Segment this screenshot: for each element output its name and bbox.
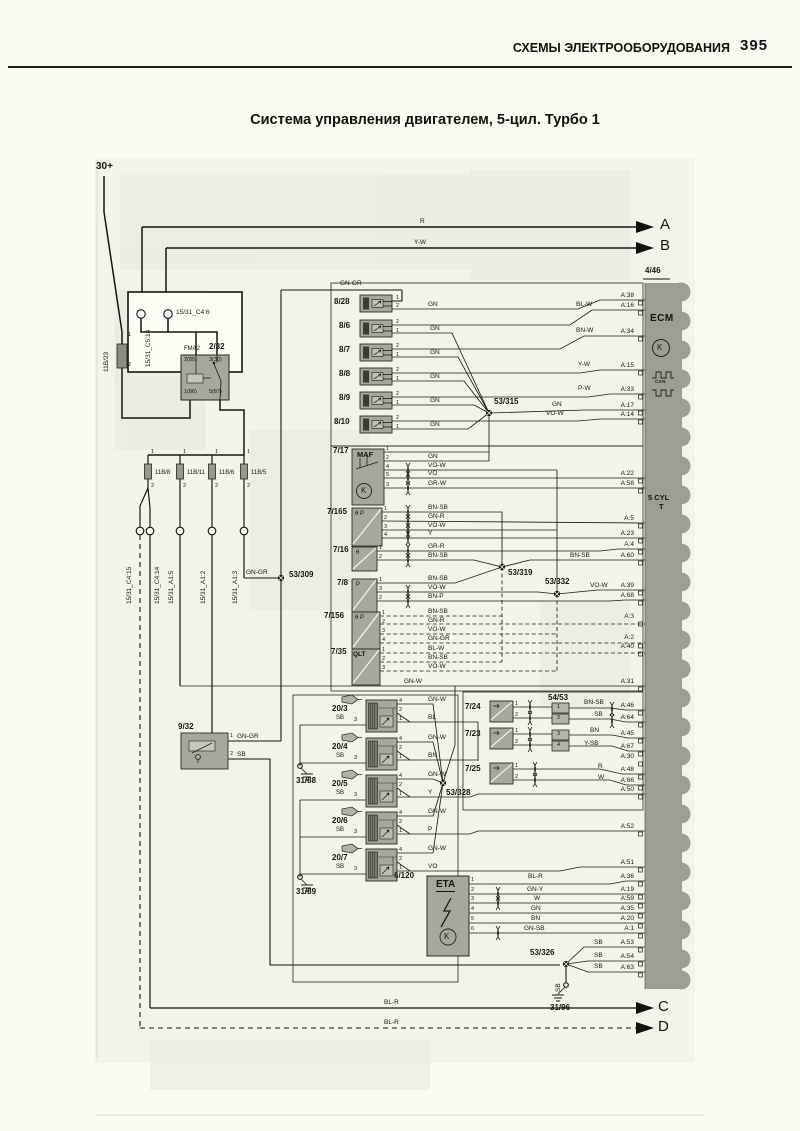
fuse-label: 11B/6 [219, 470, 234, 476]
ecm-type: T [659, 503, 664, 511]
pin-number: 1 [151, 450, 154, 456]
pin-number: 1 [515, 764, 518, 770]
component-id: 20/7 [332, 854, 348, 862]
label: SB [336, 715, 344, 721]
wire-label: GN [430, 422, 440, 429]
fuse-label: 11B/8 [155, 470, 170, 476]
pin-number: 4 [471, 907, 474, 913]
wire-label: VO [428, 471, 437, 478]
component-id: 20/4 [332, 743, 348, 751]
pin-number: 4 [384, 533, 387, 539]
label: CAN [655, 380, 666, 385]
page-title: Система управления двигателем, 5-цил. Ту… [60, 112, 790, 128]
ecm-pin: A:40 [604, 644, 634, 651]
pin-number: 1 [399, 792, 402, 798]
pin-number: 1 [128, 333, 131, 339]
ecm-pin: A:59 [604, 896, 634, 903]
wire-label: BN-SB [428, 609, 448, 616]
pin-number: 2 [396, 304, 399, 310]
pin-number: 2 [396, 392, 399, 398]
wire-label: GN-R [428, 618, 445, 625]
wire-label: VO-W [428, 463, 446, 470]
wire-label: BN-SB [584, 700, 604, 707]
ecm-pin: A:14 [604, 412, 634, 419]
pin-number: 3 [354, 830, 357, 836]
pin-number: 3 [382, 629, 385, 635]
pin-number: 3(30) [209, 358, 222, 364]
pin-number: 4 [557, 743, 560, 749]
pin-number: 4 [399, 848, 402, 854]
ecm-pin: A:20 [604, 916, 634, 923]
ecm-pin: A:16 [604, 303, 634, 310]
wire-label: GN [430, 350, 440, 357]
pin-number: 2 [396, 320, 399, 326]
pin-number: 1 [396, 401, 399, 407]
battery-30-label: 30+ [96, 162, 113, 172]
component-id: 20/3 [332, 705, 348, 713]
pin-number: 2 [471, 888, 474, 894]
arrow-c: C [658, 999, 669, 1014]
fuse-label: 11B/5 [251, 470, 266, 476]
wire-label: BN [428, 753, 437, 760]
connector-label: 15/31_A1:2 [201, 571, 208, 604]
pin-number: 4 [399, 699, 402, 705]
wire-label: R [420, 219, 425, 226]
ecm-pin: A:50 [604, 787, 634, 794]
ecm-pin: A:46 [604, 703, 634, 710]
ecm-pin: A:5 [604, 516, 634, 523]
connector-label: 15/31_C4:14 [155, 567, 162, 604]
ecm-pin: A:38 [604, 293, 634, 300]
pin-number: 2 [382, 657, 385, 663]
ecm-pin: A:34 [604, 329, 634, 336]
connector-label: 15/31_A1:3 [233, 571, 240, 604]
connector-label: 15/31_A1:5 [169, 571, 176, 604]
wire-label: GN [531, 906, 541, 913]
connector-label: 15/31_C5:14 [146, 330, 153, 367]
wire-label: SB [594, 964, 603, 971]
label: SB [336, 827, 344, 833]
splice-id: 53/328 [446, 789, 470, 797]
wire-label: Y [428, 790, 432, 797]
pin-number: 1 [515, 729, 518, 735]
component-id: 8/10 [334, 418, 350, 426]
component-label: QLT [353, 652, 366, 659]
pin-number: 1 [396, 296, 399, 302]
wire-label: BN-SB [428, 576, 448, 583]
pin-number: 1 [396, 329, 399, 335]
pin-number: 1 [396, 377, 399, 383]
ecm-pin: A:30 [604, 754, 634, 761]
wire-label: BN-SB [428, 655, 448, 662]
wire-label: VO-W [428, 523, 446, 530]
component-id: 6/120 [394, 872, 414, 880]
pin-number: 6 [471, 927, 474, 933]
wire-label: SB [556, 983, 563, 992]
wire-label: GN [428, 454, 438, 461]
component-id: 7/165 [327, 508, 347, 516]
component-id: 7/17 [333, 447, 349, 455]
ecm-pin: A:15 [604, 363, 634, 370]
pin-number: 2 [396, 416, 399, 422]
ecm-pin: A:33 [604, 387, 634, 394]
wire-label: Y [428, 531, 432, 538]
pin-number: 2 [230, 752, 233, 758]
wire-label: GN-R [428, 514, 445, 521]
pin-number: 4 [399, 774, 402, 780]
ground-id: 31/88 [296, 777, 316, 785]
pin-number: 1 [379, 578, 382, 584]
wire-label: VO-W [590, 583, 608, 590]
relay-name: FMA2 [184, 346, 200, 352]
pin-number: 3 [384, 525, 387, 531]
wire-label: GN [552, 402, 562, 409]
wire-label: W [598, 775, 604, 782]
pin-number: 3 [382, 666, 385, 672]
wire-label: VO-W [428, 664, 446, 671]
wire-label: P [428, 827, 432, 834]
wire-label: GN-W [428, 735, 446, 742]
ecm-pin: A:36 [604, 874, 634, 881]
pin-number: 1 [384, 507, 387, 513]
wire-label: BL-W [428, 646, 444, 653]
component-id: 7/23 [465, 730, 481, 738]
wire-label: BN [590, 728, 599, 735]
pin-number: 1 [515, 702, 518, 708]
wire-label: BL [428, 715, 436, 722]
pin-number: 3 [354, 756, 357, 762]
header-rule [8, 66, 792, 68]
pin-number: 1 [382, 611, 385, 617]
pin-number: 2 [379, 596, 382, 602]
pin-number: 1 [399, 829, 402, 835]
pin-number: 5 [386, 473, 389, 479]
component-id: 20/5 [332, 780, 348, 788]
wire-label: Y-SB [584, 741, 599, 748]
ecm-pin: A:60 [604, 553, 634, 560]
wire-label: VO [428, 864, 437, 871]
arrow-d: D [658, 1019, 669, 1034]
k-icon: K [657, 344, 662, 352]
ecm-pin: A:68 [604, 593, 634, 600]
wire-label: SB [237, 752, 246, 759]
pin-number: 2 [386, 456, 389, 462]
wire-label: SB [594, 712, 603, 719]
arrow-b: B [660, 238, 670, 253]
wire-label: GN-GR [340, 281, 362, 288]
wire-label: GN [428, 302, 438, 309]
pin-number: 1 [471, 878, 474, 884]
pin-number: 1 [399, 717, 402, 723]
wire-label: GN [430, 374, 440, 381]
connector-label: 15/31_C4:15 [127, 567, 134, 604]
component-id: 7/8 [337, 579, 348, 587]
pin-number: 2 [379, 555, 382, 561]
component-id: 8/7 [339, 346, 350, 354]
pin-number: 2 [396, 344, 399, 350]
wire-label: GN-W [428, 772, 446, 779]
wire-label: GN-GR [246, 570, 268, 577]
ecm-pin: A:66 [604, 778, 634, 785]
pin-number: 3 [557, 732, 560, 738]
ecm-pin: A:54 [604, 954, 634, 961]
wire-label: GR-R [428, 544, 445, 551]
pin-number: 1 [396, 353, 399, 359]
ecm-pin: A:67 [604, 744, 634, 751]
component-id: 7/24 [465, 703, 481, 711]
component-id: 8/6 [339, 322, 350, 330]
fuse-label: 11B/11 [187, 470, 205, 476]
label: SB [336, 790, 344, 796]
pin-number: 2 [183, 484, 186, 490]
wire-label: BN-W [576, 328, 593, 335]
connector-id: 54/53 [548, 694, 568, 702]
wire-label: GN [430, 326, 440, 333]
wire-label: GN-W [428, 697, 446, 704]
label: θ P [355, 615, 364, 621]
ecm-id: 4/46 [645, 267, 661, 275]
pin-number: 2 [215, 484, 218, 490]
manual-page: СХЕМЫ ЭЛЕКТРООБОРУДОВАНИЯ 395 Система уп… [0, 0, 800, 1131]
pin-number: 3 [354, 718, 357, 724]
wire-label: BN-SB [428, 553, 448, 560]
k-icon: K [444, 933, 449, 941]
label: θ [356, 550, 359, 556]
splice-id: 53/332 [545, 578, 569, 586]
pin-number: 2 [396, 368, 399, 374]
component-id: 9/32 [178, 723, 194, 731]
wire-label: SB [594, 953, 603, 960]
label: P [356, 582, 360, 588]
wire-label: SB [594, 940, 603, 947]
pin-number: 5(87) [209, 390, 222, 396]
pin-number: 1 [557, 705, 560, 711]
ecm-pin: A:22 [604, 471, 634, 478]
ecm-type: 5 CYL [648, 494, 669, 502]
wire-label: VO-W [428, 585, 446, 592]
pin-number: 2 [151, 484, 154, 490]
pin-number: 2 [384, 516, 387, 522]
wire-label: R [598, 764, 603, 771]
pin-number: 1 [183, 450, 186, 456]
pin-number: 2 [399, 783, 402, 789]
pin-number: 5 [471, 917, 474, 923]
ecm-pin: A:4 [604, 542, 634, 549]
wire-label: BL-W [576, 302, 592, 309]
pin-number: 1 [247, 450, 250, 456]
wire-label: GR-W [428, 481, 446, 488]
label: SB [336, 864, 344, 870]
pin-number: 3 [386, 483, 389, 489]
wire-label: Y-W [414, 240, 426, 247]
component-id: 8/9 [339, 394, 350, 402]
wire-label: P-W [578, 386, 591, 393]
wire-label: VO-W [428, 627, 446, 634]
ground-id: 31/89 [296, 888, 316, 896]
pin-number: 2 [515, 713, 518, 719]
pin-number: 2 [399, 857, 402, 863]
pin-number: 3 [354, 867, 357, 873]
pin-number: 1 [396, 425, 399, 431]
pin-number: 2(85) [184, 358, 197, 364]
wire-label: GN [430, 398, 440, 405]
ecm-pin: A:58 [604, 481, 634, 488]
wire-label: Y-W [578, 362, 590, 369]
splice-id: 53/319 [508, 569, 532, 577]
page-header: СХЕМЫ ЭЛЕКТРООБОРУДОВАНИЯ [0, 41, 730, 55]
component-id: 20/6 [332, 817, 348, 825]
wire-label: VO-W [546, 411, 564, 418]
component-id: 7/16 [333, 546, 349, 554]
pin-number: 1 [215, 450, 218, 456]
wire-label: BN-SB [570, 553, 590, 560]
wire-label: W [534, 896, 540, 903]
pin-number: 2 [399, 746, 402, 752]
ecm-pin: A:19 [604, 887, 634, 894]
component-id: 8/8 [339, 370, 350, 378]
wire-label: BN [531, 916, 540, 923]
pin-number: 1 [399, 755, 402, 761]
splice-id: 53/326 [530, 949, 554, 957]
component-id: 7/156 [324, 612, 344, 620]
ecm-pin: A:53 [604, 940, 634, 947]
ecm-pin: A:63 [604, 965, 634, 972]
pin-number: 4 [386, 465, 389, 471]
wire-label: BL-R [384, 1000, 399, 1007]
splice-id: 53/309 [289, 571, 313, 579]
pin-number: 2 [382, 620, 385, 626]
page-number: 395 [740, 37, 768, 54]
ecm-pin: A:39 [604, 583, 634, 590]
wire-label: GN-W [404, 679, 422, 686]
ecm-pin: A:51 [604, 860, 634, 867]
ecm-pin: A:2 [604, 635, 634, 642]
wire-label: GN-W [428, 846, 446, 853]
component-id: 8/28 [334, 298, 350, 306]
wire-label: GN-SB [524, 926, 545, 933]
ecm-pin: A:1 [604, 926, 634, 933]
component-id: 7/25 [465, 765, 481, 773]
pin-number: 2 [247, 484, 250, 490]
component-label: MAF [357, 451, 373, 459]
pin-number: 1(86) [184, 390, 197, 396]
ecm-pin: A:17 [604, 403, 634, 410]
component-label: ETA [436, 880, 455, 892]
wiring-diagram-svg [0, 0, 800, 1131]
pin-number: 2 [399, 708, 402, 714]
pin-number: 2 [515, 775, 518, 781]
pin-number: 1 [382, 648, 385, 654]
pin-number: 1 [386, 447, 389, 453]
wire-label: BL-R [528, 874, 543, 881]
ecm-pin: A:3 [604, 614, 634, 621]
ecm-pin: A:23 [604, 531, 634, 538]
fuse-label: 11B/23 [104, 352, 111, 372]
connector-label: 15/31_C4:6 [176, 310, 210, 317]
pin-number: 3 [471, 897, 474, 903]
pin-number: 4 [399, 737, 402, 743]
ground-id: 31/96 [550, 1004, 570, 1012]
pin-number: 1 [230, 734, 233, 740]
wire-label: BL-R [384, 1020, 399, 1027]
ecm-pin: A:64 [604, 715, 634, 722]
k-icon: K [361, 487, 366, 495]
pin-number: 4 [382, 638, 385, 644]
ecm-pin: A:35 [604, 906, 634, 913]
resistor-9-32 [181, 733, 228, 769]
wire-label: GN-W [428, 809, 446, 816]
pin-number: 3 [379, 587, 382, 593]
wire-label: BN-P [428, 594, 444, 601]
splice-id: 53/315 [494, 398, 518, 406]
pin-number: 1 [379, 546, 382, 552]
ecm-pin: A:31 [604, 679, 634, 686]
pin-number: 4 [399, 811, 402, 817]
wire-label: BN-SB [428, 505, 448, 512]
wire-label: GN-Y [527, 887, 543, 894]
ecm-pin: A:48 [604, 767, 634, 774]
wire-label: GN-GR [237, 734, 259, 741]
relay-id: 2/32 [209, 343, 225, 351]
pin-number: 3 [354, 793, 357, 799]
ecm-label: ECM [650, 314, 674, 324]
wire-label: GN-GR [428, 636, 450, 643]
label: θ P [355, 511, 364, 517]
pin-number: 2 [128, 363, 131, 369]
pin-number: 2 [515, 740, 518, 746]
arrow-a: A [660, 217, 670, 232]
component-id: 7/35 [331, 648, 347, 656]
pin-number: 2 [557, 716, 560, 722]
ecm-pin: A:52 [604, 824, 634, 831]
label: SB [336, 753, 344, 759]
ecm-pin: A:45 [604, 731, 634, 738]
pin-number: 2 [399, 820, 402, 826]
